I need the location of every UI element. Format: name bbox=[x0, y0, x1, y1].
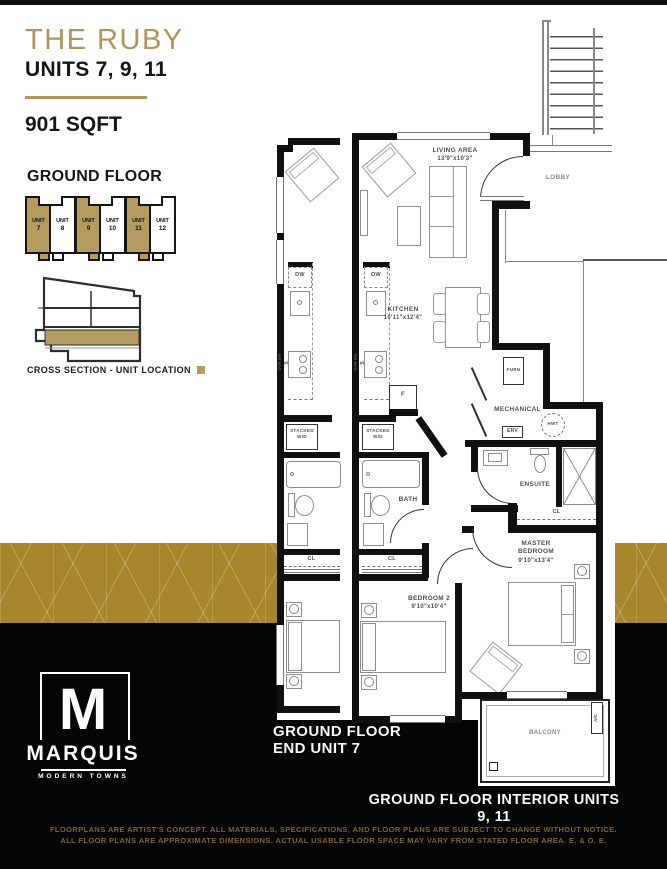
logo-tagline: MODERN TOWNS bbox=[38, 773, 129, 780]
furniture-coffee-table bbox=[397, 206, 421, 246]
lamp bbox=[289, 676, 299, 686]
wall bbox=[281, 415, 332, 422]
wall bbox=[465, 440, 603, 447]
square-footage: 901 SQFT bbox=[25, 113, 122, 137]
erv-label: ERV bbox=[502, 428, 523, 435]
units-subtitle: UNITS 7, 9, 11 bbox=[25, 58, 167, 82]
lobby-wall-line bbox=[583, 259, 667, 261]
balcony-inner-line bbox=[486, 705, 604, 777]
wall bbox=[281, 452, 340, 458]
window bbox=[390, 715, 445, 723]
gold-square-icon bbox=[197, 366, 205, 374]
furnace-label: FURN bbox=[503, 367, 524, 373]
mechanical-label: MECHANICAL bbox=[480, 406, 555, 414]
furniture-tv-console bbox=[360, 190, 368, 236]
stairs-rail bbox=[547, 22, 549, 135]
faucet bbox=[366, 472, 370, 476]
hwt-label: HWT bbox=[541, 421, 565, 427]
furniture-chair bbox=[433, 321, 446, 343]
furniture-chair bbox=[433, 293, 446, 315]
fixture-toilet-bowl bbox=[371, 495, 390, 516]
unit-roof bbox=[161, 196, 176, 206]
counter-edge bbox=[364, 399, 389, 400]
logo-name: MARQUIS bbox=[22, 740, 144, 768]
stairs-rail bbox=[593, 28, 595, 134]
cross-section-diagram bbox=[28, 272, 158, 364]
wall bbox=[509, 525, 603, 533]
fridge-label: F bbox=[389, 392, 417, 400]
fixture-toilet-bowl bbox=[295, 495, 314, 516]
bed-pillows bbox=[561, 585, 574, 643]
furniture-dining-table bbox=[445, 287, 481, 348]
wall bbox=[277, 706, 340, 713]
unit-key-12: UNIT12 bbox=[149, 204, 176, 254]
top-bar bbox=[0, 0, 667, 5]
wall bbox=[543, 350, 550, 405]
unit-tab bbox=[152, 254, 164, 261]
unit-tab bbox=[88, 254, 100, 261]
closet-label: CL bbox=[362, 556, 422, 563]
faucet bbox=[373, 300, 378, 305]
bath-label: BATH bbox=[390, 496, 426, 504]
balcony-label: BALCONY bbox=[512, 730, 578, 738]
wall bbox=[523, 133, 530, 156]
lamp bbox=[364, 677, 374, 687]
lobby-wall-line bbox=[583, 261, 584, 402]
closet-label: CL bbox=[283, 556, 340, 563]
unit-key-7: UNIT7 bbox=[25, 204, 52, 254]
faucet bbox=[290, 472, 294, 476]
closet-dash bbox=[362, 566, 422, 567]
wall bbox=[596, 409, 603, 700]
sink-basin bbox=[488, 453, 502, 462]
disclaimer-line-2: ALL FLOOR PLANS ARE APPROXIMATE DIMENSIO… bbox=[0, 836, 667, 845]
burner bbox=[299, 366, 307, 374]
fixture-bathtub bbox=[362, 460, 420, 488]
washer-dryer-label: STACKEDW/D bbox=[286, 428, 318, 441]
counter-edge bbox=[312, 263, 313, 400]
ground-floor-heading: GROUND FLOOR bbox=[27, 168, 162, 186]
unit-key-10: UNIT10 bbox=[99, 204, 126, 254]
unit-roof bbox=[25, 196, 40, 206]
unit-roof bbox=[111, 196, 126, 206]
wall bbox=[281, 549, 340, 555]
kitchen-label: KITCHEN10'11"x12'4" bbox=[368, 306, 438, 323]
lamp bbox=[577, 651, 587, 661]
wall bbox=[358, 415, 396, 422]
counter-edge bbox=[389, 263, 390, 385]
lobby-glazing bbox=[530, 145, 612, 152]
furniture-chair bbox=[477, 293, 490, 315]
sliding-door bbox=[507, 691, 567, 699]
cross-section-caption: CROSS SECTION - UNIT LOCATION bbox=[27, 365, 205, 375]
wall bbox=[358, 452, 423, 458]
fixture-toilet-tank bbox=[288, 493, 295, 517]
brochure-page: THE RUBY UNITS 7, 9, 11 901 SQFT GROUND … bbox=[0, 0, 667, 869]
fixture-sink bbox=[287, 523, 308, 546]
logo-monogram: M bbox=[40, 676, 126, 744]
unit-key-11: UNIT11 bbox=[125, 204, 152, 254]
wall bbox=[281, 574, 340, 581]
wall bbox=[358, 549, 428, 555]
dishwasher-label: DW bbox=[364, 272, 388, 279]
lamp bbox=[289, 604, 299, 614]
closet-label: CL bbox=[517, 509, 596, 516]
closet-dash bbox=[517, 519, 596, 520]
lamp bbox=[577, 566, 587, 576]
wall bbox=[492, 209, 499, 350]
wall bbox=[352, 133, 359, 723]
lamp bbox=[364, 605, 374, 615]
end-unit-caption: GROUND FLOOREND UNIT 7 bbox=[273, 723, 401, 757]
wall bbox=[455, 583, 462, 723]
disclaimer-line-1: FLOORPLANS ARE ARTIST'S CONCEPT. ALL MAT… bbox=[0, 825, 667, 834]
master-bedroom-label: MASTERBEDROOM9'10"x13'4" bbox=[500, 540, 572, 566]
unit-tab bbox=[52, 254, 64, 261]
closet-shelf bbox=[362, 569, 422, 573]
stairs-treads bbox=[550, 36, 603, 133]
bed-pillows bbox=[288, 622, 302, 671]
closet-dash bbox=[284, 566, 340, 567]
wall bbox=[556, 447, 562, 507]
burner bbox=[375, 366, 383, 374]
window bbox=[397, 132, 490, 140]
window bbox=[276, 625, 284, 685]
unit-tab bbox=[138, 254, 150, 261]
fixture-toilet-tank bbox=[530, 448, 549, 455]
wall bbox=[288, 138, 340, 145]
wall bbox=[358, 574, 428, 581]
bed-pillows bbox=[362, 623, 376, 671]
unit-location-key: UNIT7 UNIT8 UNIT9 UNIT10 UNIT11 UNIT12 bbox=[25, 196, 175, 260]
living-area-label: LIVING AREA13'9"x10'3" bbox=[400, 147, 510, 164]
unit-tab bbox=[102, 254, 114, 261]
stove-label: S bbox=[284, 358, 290, 368]
furniture-sofa bbox=[429, 166, 467, 258]
faucet bbox=[297, 300, 302, 305]
logo-rule bbox=[41, 769, 126, 771]
closet-shelf bbox=[284, 569, 340, 573]
wall bbox=[492, 201, 530, 209]
dishwasher-label: DW bbox=[288, 272, 312, 279]
stairs-rail bbox=[542, 22, 544, 135]
fixture-shower bbox=[563, 448, 596, 505]
lobby-wall-line bbox=[505, 210, 506, 263]
washer-dryer-label: STACKEDW/D bbox=[362, 428, 394, 441]
window bbox=[276, 177, 284, 233]
lobby-wall-line bbox=[505, 261, 584, 262]
page-title: THE RUBY bbox=[25, 24, 184, 57]
unit-tab bbox=[38, 254, 50, 261]
fixture-sink bbox=[363, 523, 384, 546]
stove-label: S bbox=[360, 358, 366, 368]
unit-roof bbox=[61, 196, 76, 206]
gold-divider bbox=[25, 96, 147, 99]
ac-label: A/C bbox=[593, 703, 601, 733]
unit-roof bbox=[75, 196, 90, 206]
burner bbox=[375, 355, 383, 363]
counter-edge bbox=[288, 399, 313, 400]
wall bbox=[492, 343, 550, 350]
balcony-post bbox=[489, 762, 498, 771]
window bbox=[276, 240, 284, 284]
fixture-bathtub bbox=[286, 461, 341, 488]
unit-key-8: UNIT8 bbox=[49, 204, 76, 254]
unit-roof bbox=[125, 196, 140, 206]
interior-units-caption: GROUND FLOOR INTERIOR UNITS 9, 11 bbox=[364, 792, 624, 826]
fixture-toilet-bowl bbox=[534, 455, 546, 473]
unit-key-9: UNIT9 bbox=[75, 204, 102, 254]
burner bbox=[299, 355, 307, 363]
fixture-toilet-tank bbox=[364, 493, 371, 517]
lobby-label: LOBBY bbox=[535, 174, 581, 182]
furniture-chair bbox=[477, 321, 490, 343]
